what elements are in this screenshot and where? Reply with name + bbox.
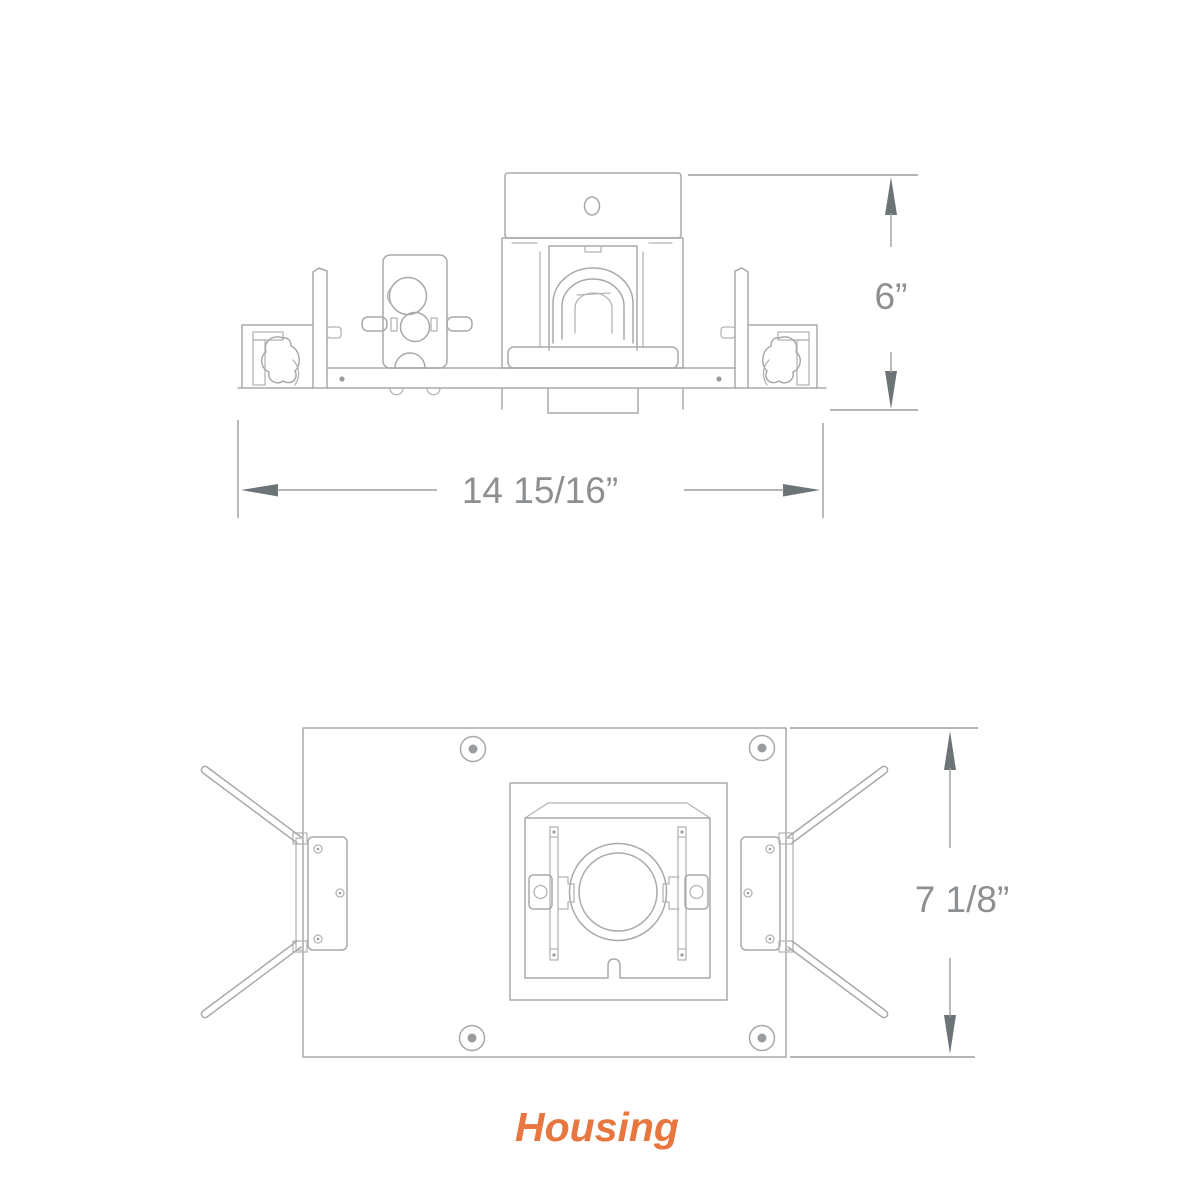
dimension-label-height: 6” — [875, 276, 908, 317]
caption-housing: Housing — [515, 1104, 679, 1150]
bracket-chamfer — [525, 803, 710, 818]
rivet-right — [716, 376, 721, 381]
jbox-feet — [390, 388, 440, 395]
lamp-outline — [575, 293, 612, 333]
arrow-left-icon — [241, 484, 278, 497]
dimension-front-height: 6” — [688, 175, 918, 410]
rivet-left — [339, 376, 344, 381]
side-plate-right — [741, 766, 888, 1017]
can-top-box — [505, 173, 681, 238]
hanger-bar — [238, 368, 826, 388]
can-below-ceiling — [502, 389, 683, 413]
aperture-assembly — [510, 783, 727, 1000]
trim-flange — [508, 347, 678, 368]
front-elevation-view — [238, 173, 826, 413]
dimension-plan-height: 7 1/8” — [790, 728, 1009, 1057]
wing-lower-left — [201, 941, 301, 1018]
dimension-front-width: 14 15/16” — [238, 420, 823, 518]
mounting-bracket-right — [721, 268, 817, 388]
fold-line-left — [296, 838, 303, 950]
arrow-down-icon — [944, 1015, 956, 1054]
arrow-right-icon — [783, 484, 820, 497]
wing-upper-right — [788, 766, 888, 843]
nail-plate-left — [313, 268, 327, 388]
trim-ring-inner — [579, 853, 657, 931]
fold-line-right — [786, 838, 793, 950]
horseshoe-inner — [562, 279, 624, 339]
can-body — [502, 238, 683, 368]
mounting-bracket-left — [242, 268, 341, 388]
arrow-up-icon — [944, 731, 956, 770]
side-clamps — [529, 875, 708, 909]
spec-sheet-canvas: 6” 14 15/16” — [0, 0, 1200, 1200]
housing-technical-drawing: 6” 14 15/16” — [0, 0, 1200, 1200]
nail-plate-right — [735, 268, 748, 388]
knockout-top — [390, 278, 427, 315]
arrow-up-icon — [885, 177, 897, 215]
jbox-tab-right — [447, 317, 472, 331]
junction-box — [362, 255, 472, 395]
plan-view — [201, 728, 887, 1057]
wing-lower-right — [788, 941, 888, 1018]
arrow-down-icon — [885, 371, 897, 409]
recessed-can — [502, 173, 683, 413]
knockout-bottom — [395, 353, 425, 368]
can-mounting-hole — [585, 197, 600, 215]
dimension-label-width: 14 15/16” — [462, 470, 618, 511]
side-plate-left — [201, 766, 347, 1017]
wing-upper-left — [201, 766, 301, 843]
mounting-pan — [303, 728, 786, 1057]
aperture-outer-square — [510, 783, 727, 1000]
lamp-yoke — [540, 246, 643, 350]
knockout-middle — [401, 313, 430, 342]
trim-ring-outer — [570, 844, 667, 941]
dimension-label-plan-height: 7 1/8” — [915, 879, 1010, 920]
